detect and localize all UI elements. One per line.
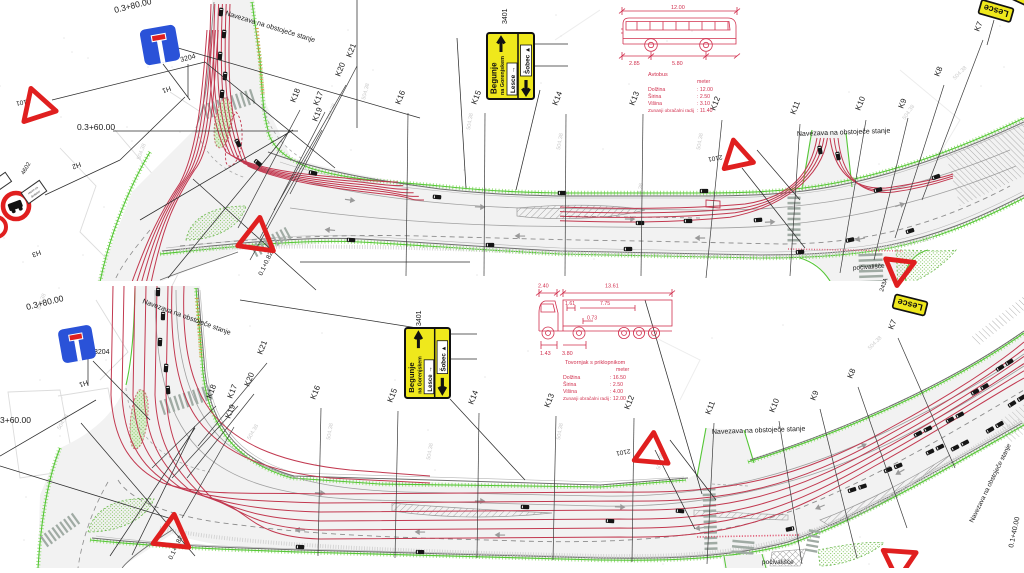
- svg-text:: 4.00: : 4.00: [610, 389, 623, 395]
- svg-text:na Gorenjskem: na Gorenjskem: [500, 56, 506, 95]
- svg-text:12.00: 12.00: [671, 5, 685, 11]
- svg-text:meter: meter: [616, 367, 630, 373]
- svg-text:3401: 3401: [502, 8, 509, 24]
- svg-text:: 12.00: : 12.00: [697, 87, 713, 93]
- svg-text:Zunanji obračalni radij: Zunanji obračalni radij: [563, 396, 609, 401]
- svg-text:Zunanji obračalni radij: Zunanji obračalni radij: [648, 108, 694, 113]
- svg-text:na Gorenjskem: na Gorenjskem: [417, 356, 423, 394]
- svg-text:: 12.00: : 12.00: [610, 396, 626, 402]
- svg-text:: 11.40: : 11.40: [697, 108, 713, 114]
- svg-text:Višina: Višina: [563, 389, 577, 395]
- svg-text:: 16.50: : 16.50: [610, 375, 626, 381]
- svg-text:3+60.00: 3+60.00: [0, 415, 31, 425]
- svg-text:Lesce →: Lesce →: [510, 67, 517, 93]
- svg-text:Begunje: Begunje: [490, 62, 499, 94]
- svg-text:Šobec ▲: Šobec ▲: [523, 47, 532, 74]
- svg-text:Širina: Širina: [563, 381, 576, 388]
- svg-text:3.80: 3.80: [562, 351, 573, 357]
- svg-text:0.3+60.00: 0.3+60.00: [77, 122, 115, 132]
- svg-text:0.73: 0.73: [587, 316, 597, 322]
- svg-text:Šobec ▲: Šobec ▲: [440, 345, 448, 371]
- svg-text:Dolžina: Dolžina: [648, 87, 665, 93]
- svg-text:počivališče: počivališče: [762, 559, 794, 566]
- svg-text:Lesce →: Lesce →: [427, 367, 434, 392]
- svg-text:3401: 3401: [416, 310, 423, 326]
- svg-text:5.80: 5.80: [672, 61, 683, 67]
- svg-text:7.75: 7.75: [600, 301, 610, 307]
- svg-text:Avtobus: Avtobus: [648, 72, 668, 78]
- svg-text:Širina: Širina: [648, 93, 661, 100]
- svg-text:Tovornjak s priklopnikom: Tovornjak s priklopnikom: [565, 360, 626, 366]
- svg-text:13.61: 13.61: [605, 284, 619, 290]
- svg-text:: 2.50: : 2.50: [610, 382, 623, 388]
- svg-text:3204: 3204: [94, 349, 110, 356]
- svg-text:2.85: 2.85: [629, 61, 640, 67]
- svg-text:Višina: Višina: [648, 101, 662, 107]
- svg-text:Dolžina: Dolžina: [563, 375, 580, 381]
- svg-text:Begunje: Begunje: [407, 362, 416, 393]
- svg-text:: 3.10: : 3.10: [697, 101, 710, 107]
- svg-text:meter: meter: [697, 79, 711, 85]
- svg-text:2.40: 2.40: [538, 284, 549, 290]
- svg-text:: 2.50: : 2.50: [697, 94, 710, 100]
- svg-text:1.43: 1.43: [540, 351, 551, 357]
- svg-text:1.61: 1.61: [565, 301, 575, 307]
